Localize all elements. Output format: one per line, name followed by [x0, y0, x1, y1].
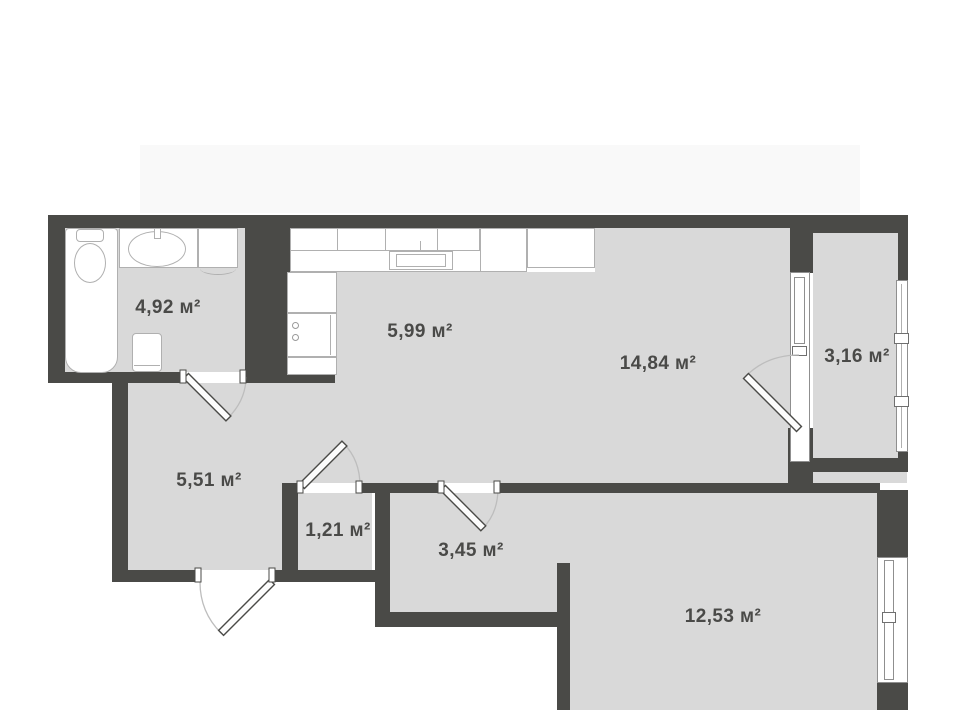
entry-door-arc [200, 582, 221, 633]
room-label-living: 14,84 м² [620, 353, 696, 375]
room-label-kitchen: 5,99 м² [387, 321, 452, 343]
room-label-bedroom: 12,53 м² [685, 606, 761, 628]
closet-door-leaf [300, 441, 347, 488]
room-label-closet: 1,21 м² [305, 520, 370, 542]
corridor-door-leaf [441, 486, 486, 531]
floor-plan: 4,92 м² 5,99 м² 14,84 м² 3,16 м² 5,51 м²… [0, 0, 960, 710]
bathroom-door-leaf [184, 374, 231, 421]
room-label-balcony: 3,16 м² [824, 346, 889, 368]
room-label-hallway: 5,51 м² [176, 470, 241, 492]
room-label-corridor: 3,45 м² [438, 540, 503, 562]
corridor-door-arc [483, 488, 498, 528]
door-swing-layer [0, 0, 960, 710]
balcony-door-arc [746, 355, 799, 376]
balcony-door-leaf [743, 373, 801, 431]
room-label-bathroom: 4,92 м² [135, 297, 200, 319]
entry-door-leaf [219, 580, 275, 636]
closet-door-arc [344, 444, 360, 486]
